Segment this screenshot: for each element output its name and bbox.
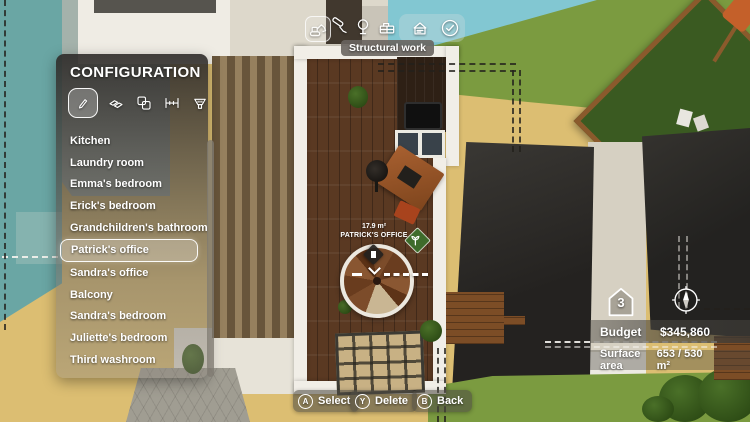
- floor-number: 3: [606, 295, 636, 310]
- pool: [0, 0, 62, 322]
- paint-roller-icon[interactable]: [328, 16, 350, 38]
- budget-bar: Budget $345,860: [590, 320, 750, 343]
- funnel-icon[interactable]: [190, 93, 210, 113]
- check-icon[interactable]: [439, 17, 461, 39]
- room-list-item[interactable]: Emma's bedroom: [56, 174, 208, 196]
- tree-icon[interactable]: [352, 16, 374, 38]
- room-list-item[interactable]: Kitchen: [56, 130, 208, 152]
- floor-indicator[interactable]: 3: [606, 286, 636, 318]
- hint-select-label: Select: [318, 395, 350, 407]
- room-list-item[interactable]: Grandchildren's bathroom: [56, 217, 208, 239]
- deck-right: [446, 292, 504, 344]
- compass[interactable]: [670, 284, 702, 316]
- hint-delete[interactable]: Y Delete: [350, 390, 417, 412]
- pencil-tool-button[interactable]: [68, 88, 98, 118]
- room-list-item[interactable]: Sandra's bedroom: [56, 306, 208, 328]
- hint-back-label: Back: [437, 395, 463, 407]
- pencil-icon: [74, 94, 92, 112]
- room-list-item[interactable]: Juliette's bedroom: [56, 327, 208, 349]
- compass-icon: [670, 284, 702, 316]
- excavator-icon: [307, 18, 329, 40]
- room-list-item[interactable]: Erick's bedroom: [56, 195, 208, 217]
- roof-main: [452, 142, 594, 392]
- wall-left: [294, 46, 307, 394]
- room-list-item[interactable]: Laundry room: [56, 152, 208, 174]
- button-b-icon: B: [417, 394, 432, 409]
- room-list-item[interactable]: Third washroom: [56, 349, 208, 371]
- panel-title: CONFIGURATION: [70, 64, 201, 81]
- house-upload-icon[interactable]: [409, 17, 431, 39]
- budget-value: $345,860: [660, 325, 710, 339]
- property-line: [4, 0, 6, 330]
- surface-area-label: Surface area: [600, 348, 657, 372]
- room-list-item[interactable]: Balcony: [56, 284, 208, 306]
- bush-small: [642, 396, 674, 422]
- rug: [335, 330, 425, 395]
- room-list-item[interactable]: Sandra's office: [56, 262, 208, 284]
- measure-line: [378, 63, 516, 65]
- hint-delete-label: Delete: [375, 395, 408, 407]
- budget-label: Budget: [600, 325, 641, 339]
- materials-icon[interactable]: [106, 93, 126, 113]
- room-list: Kitchen Laundry room Emma's bedroom Eric…: [56, 130, 208, 371]
- measure-line: [512, 70, 514, 152]
- rooms-icon[interactable]: [134, 93, 154, 113]
- office-plant: [348, 86, 368, 108]
- surface-area-bar: Surface area 653 / 530 m²: [590, 350, 750, 370]
- roof-edge-band: [94, 0, 216, 13]
- configuration-panel: CONFIGURATION Kitchen Laundry room: [56, 54, 208, 378]
- pool-dash-line: [2, 256, 58, 258]
- button-y-icon: Y: [355, 394, 370, 409]
- room-area-label: 17.9 m²: [330, 223, 418, 230]
- office-chair-black: [366, 160, 388, 182]
- button-a-icon: A: [298, 394, 313, 409]
- surface-area-value: 653 / 530 m²: [657, 348, 710, 372]
- toolbar-tooltip: Structural work: [341, 40, 434, 56]
- measure-line: [519, 70, 521, 152]
- staircase-dash-tick: [352, 273, 362, 276]
- office-chair-stem: [375, 181, 378, 192]
- panel-tools-row: [68, 88, 210, 118]
- furniture-icon[interactable]: [376, 16, 398, 38]
- room-list-scrollbar[interactable]: [207, 140, 214, 377]
- staircase-dash: [384, 273, 428, 276]
- laptop: [397, 165, 422, 188]
- room-list-item-selected[interactable]: Patrick's office: [60, 239, 198, 262]
- staircase-center: [373, 277, 381, 285]
- bathtub: [404, 102, 442, 130]
- bush-office-corner: [420, 320, 442, 342]
- door-icon: [371, 251, 376, 258]
- measure-icon[interactable]: [162, 93, 182, 113]
- measure-line: [378, 70, 516, 72]
- measure-line: [694, 308, 750, 310]
- game-viewport: 17.9 m² PATRICK'S OFFICE Structural work…: [0, 0, 750, 422]
- sprout-icon: [409, 233, 421, 251]
- hint-back[interactable]: B Back: [412, 390, 472, 412]
